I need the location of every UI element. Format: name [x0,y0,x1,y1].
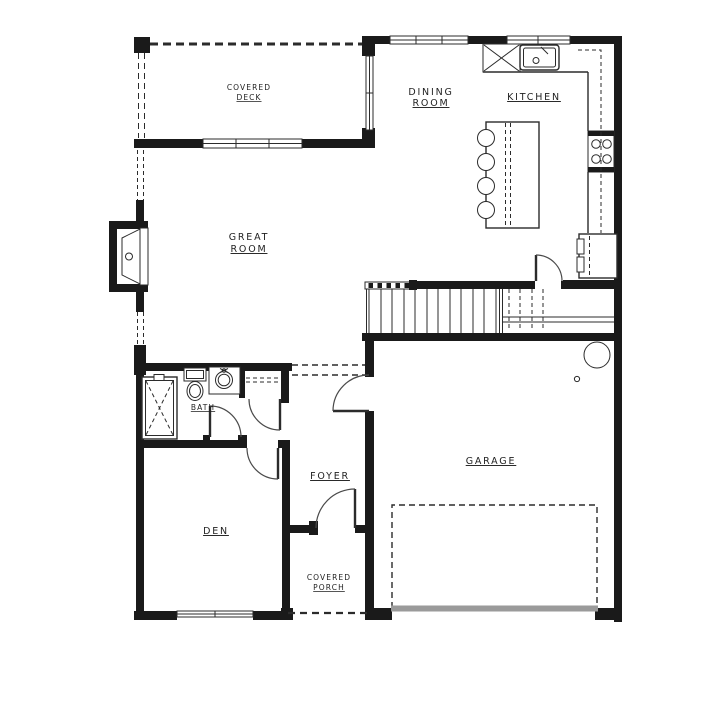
garage-overhead-door-track [392,505,597,608]
great-room-west-window-lower [138,312,144,345]
room-label-covered-porch: COVERED [307,573,351,582]
deck-east-window [366,56,373,130]
deck-post [134,37,150,53]
stair-railing [365,280,417,290]
door-kitchen-hall [536,255,562,281]
shower-head [154,375,164,381]
refrigerator [577,234,617,278]
kitchen-fixtures [478,44,618,278]
door-front-entry [316,489,355,528]
great-room-west-window-upper [138,150,144,200]
room-label-covered-porch2: PORCH [313,583,345,592]
range [588,131,614,172]
basement-stairs-dashed [509,289,543,331]
room-label-great-room: GREAT [229,232,270,243]
room-label-bath: BATH [191,403,215,412]
dining-window [390,36,468,44]
kitchen-sink-window [507,36,570,44]
stair-landing-lines [502,317,614,322]
dishwasher [483,44,520,72]
floor-drain [574,376,579,381]
toilet [184,368,206,401]
door-den [247,448,278,479]
den-window [177,611,253,617]
kitchen-sink [520,45,559,70]
fireplace [109,221,148,292]
room-label-great-room2: ROOM [231,244,268,255]
coat-closet-shelf [246,378,281,382]
great-room-hall-opening [292,365,365,375]
room-label-dining2: ROOM [413,98,450,109]
door-coat-closet [249,399,280,430]
room-label-garage: GARAGE [466,456,517,467]
stair-treads [367,289,503,333]
room-label-den: DEN [203,526,229,537]
room-label-foyer: FOYER [310,471,350,482]
room-label-dining: DINING [408,87,453,98]
room-label-covered-deck2: DECK [236,93,261,102]
great-room-north-window [203,139,302,148]
garage-fixtures [391,342,610,612]
floor-plan: COVERED DECK DINING ROOM KITCHEN GREAT R… [0,0,720,725]
bathroom-vanity [209,367,240,394]
doors [210,255,562,528]
room-label-covered-deck: COVERED [227,83,271,92]
floor-plan-sheet: COVERED DECK DINING ROOM KITCHEN GREAT R… [0,0,720,725]
room-label-kitchen: KITCHEN [507,92,561,103]
door-garage-entry [333,375,369,411]
shower [142,375,177,440]
garage-overhead-door [391,606,598,612]
water-heater [584,342,610,368]
